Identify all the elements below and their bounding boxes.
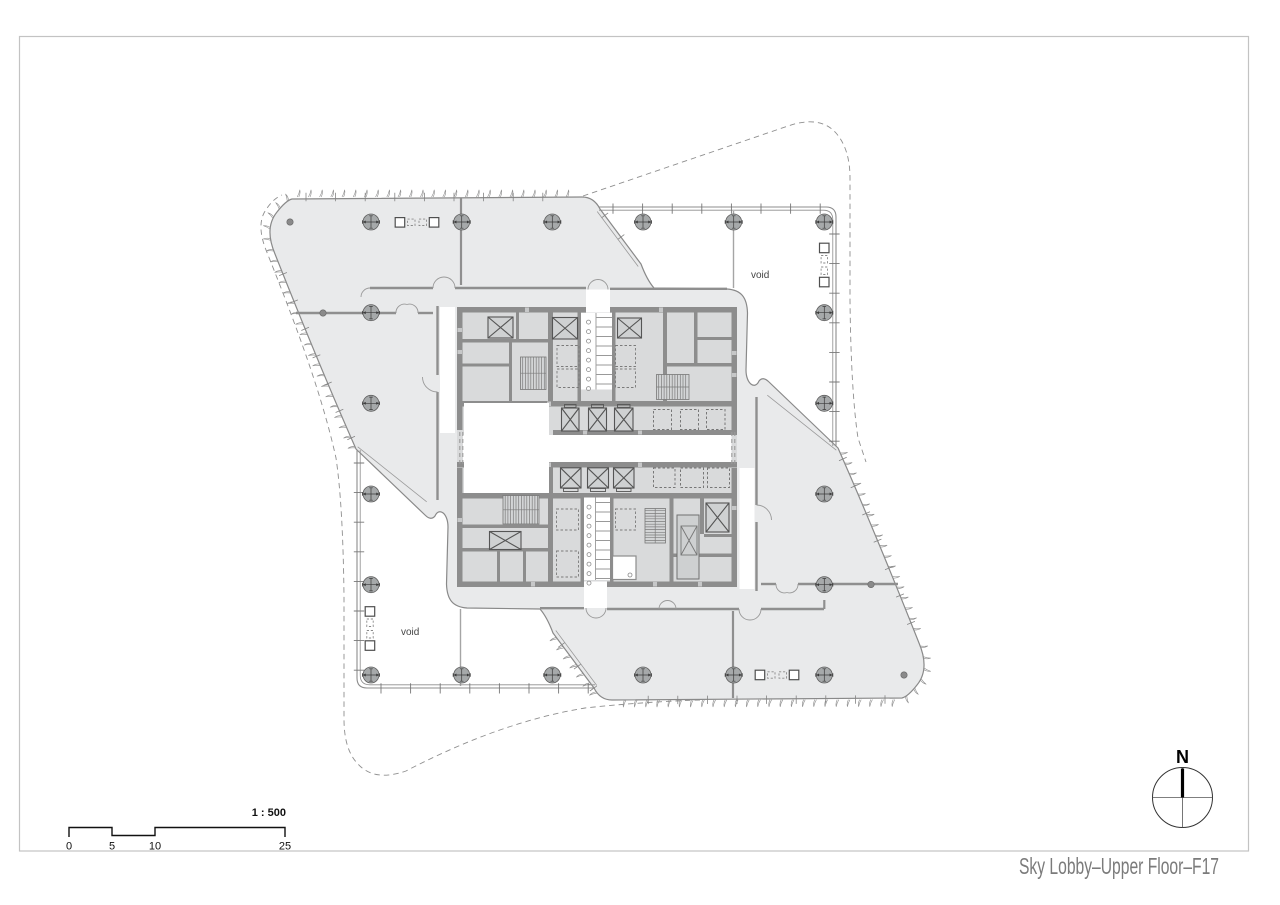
svg-text:void: void	[751, 270, 769, 281]
svg-text:1 : 500: 1 : 500	[252, 807, 286, 819]
svg-text:10: 10	[149, 841, 161, 853]
svg-text:void: void	[401, 627, 419, 638]
svg-text:0: 0	[66, 841, 72, 853]
svg-text:5: 5	[109, 841, 115, 853]
svg-text:Sky Lobby–Upper Floor–F17: Sky Lobby–Upper Floor–F17	[1019, 853, 1219, 879]
svg-text:N: N	[1176, 747, 1189, 767]
svg-text:25: 25	[279, 841, 291, 853]
